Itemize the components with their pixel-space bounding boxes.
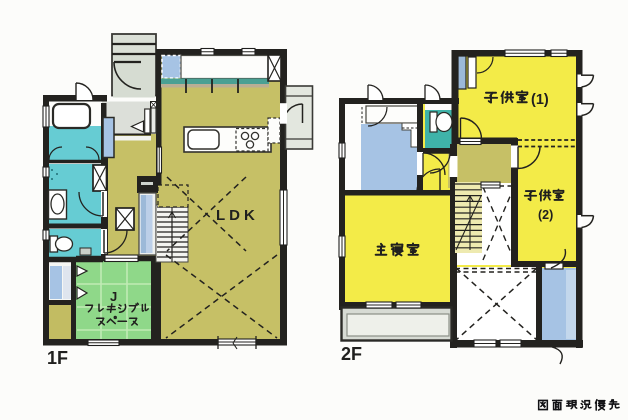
svg-text:LDK: LDK xyxy=(216,207,259,224)
svg-text:(2): (2) xyxy=(538,208,553,222)
svg-text:J: J xyxy=(110,289,117,304)
svg-text:2F: 2F xyxy=(341,344,362,364)
svg-text:(1): (1) xyxy=(531,92,549,108)
svg-text:1F: 1F xyxy=(47,348,68,368)
